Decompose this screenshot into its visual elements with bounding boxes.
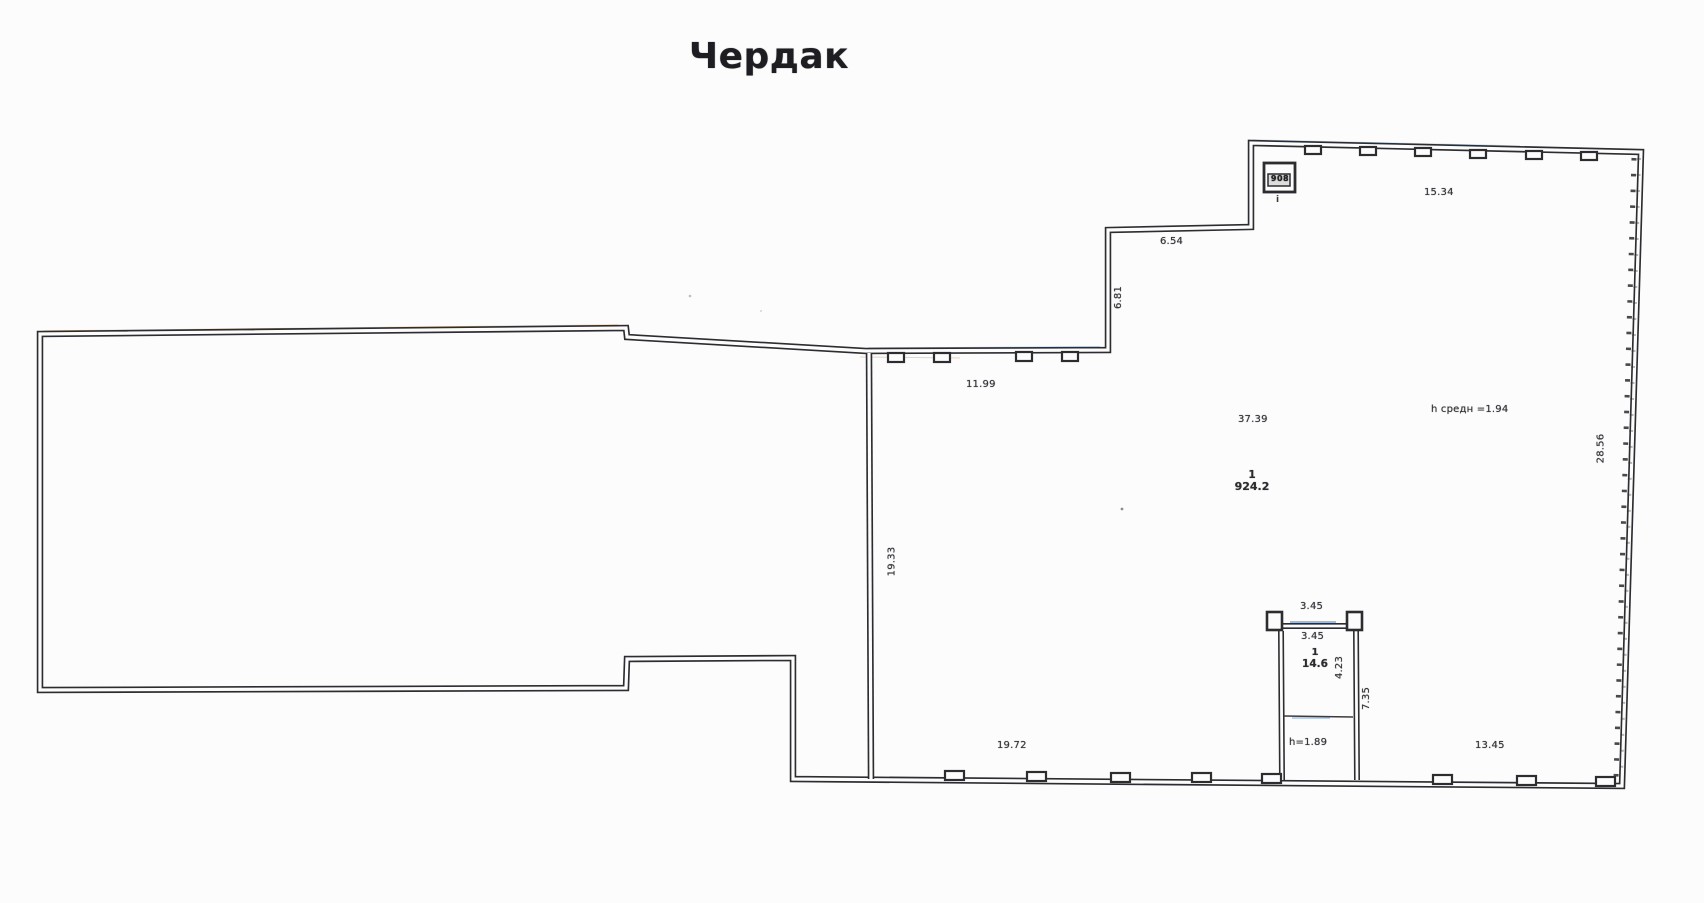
dim-right-side-depth: 28.56	[1595, 434, 1606, 464]
stamp-code-label: 908	[1266, 174, 1294, 183]
dim-bottom-right-width: 13.45	[1475, 740, 1505, 751]
booth-corner-post-left	[1267, 612, 1282, 630]
booth-room-number: 1	[1295, 647, 1335, 658]
booth-dim-depth: 4.23	[1334, 656, 1345, 679]
dim-ledge-top-width: 11.99	[966, 379, 996, 390]
scan-specks	[689, 295, 1124, 511]
avg-height-note: h средн =1.94	[1431, 404, 1508, 415]
exterior-walls	[40, 143, 1641, 786]
scanned-floor-plan-page: Чердак	[0, 0, 1704, 903]
booth-dim-inner-width: 3.45	[1301, 631, 1324, 642]
booth-dim-total-depth: 7.35	[1361, 687, 1372, 710]
booth-room-label: 1 14.6	[1295, 647, 1335, 670]
dim-step-side-height: 6.81	[1113, 286, 1124, 309]
stamp-mark-label: i	[1276, 195, 1279, 205]
main-room-label: 1 924.2	[1226, 470, 1278, 493]
interior-wall	[869, 353, 871, 779]
dim-bottom-left-width: 19.72	[997, 740, 1027, 751]
booth-dim-outer-width: 3.45	[1300, 601, 1323, 612]
dim-left-inner-depth: 19.33	[886, 547, 897, 577]
booth-height-note: h=1.89	[1289, 737, 1327, 748]
dim-top-right-width: 15.34	[1424, 187, 1454, 198]
wall-notches	[888, 146, 1615, 786]
floor-plan-drawing	[0, 0, 1704, 903]
dim-step-top-width: 6.54	[1160, 236, 1183, 247]
dim-main-room-width: 37.39	[1238, 414, 1268, 425]
booth-corner-post-right	[1347, 612, 1362, 630]
main-room-area: 924.2	[1226, 481, 1278, 493]
booth-divider-line	[1284, 716, 1353, 717]
booth-room-area: 14.6	[1295, 658, 1335, 670]
